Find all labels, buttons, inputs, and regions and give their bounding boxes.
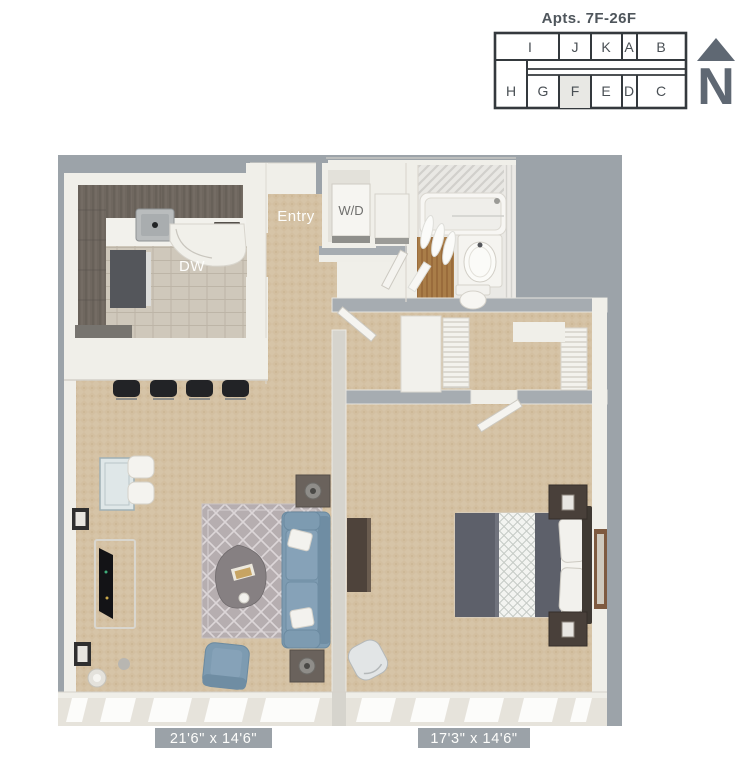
- key-plan-unit-c: C: [656, 83, 666, 99]
- floor-plan-page: Apts. 7F-26F I J K A B H G F E D C N: [0, 0, 740, 768]
- sofa: [282, 512, 330, 648]
- key-plan-unit-f: F: [571, 83, 580, 99]
- key-plan-unit-h: H: [506, 83, 516, 99]
- key-plan-unit-a: A: [624, 39, 634, 55]
- desk-chair: [128, 482, 154, 504]
- television: [99, 548, 113, 619]
- refrigerator: [110, 250, 146, 308]
- entry-label: Entry: [277, 208, 315, 225]
- washer-dryer-label: W/D: [338, 203, 363, 218]
- throw-pillow: [290, 607, 315, 629]
- hall-cabinet: [375, 194, 409, 238]
- kitchen-island: [64, 338, 268, 380]
- key-plan-unit-e: E: [601, 83, 610, 99]
- key-plan-unit-d: D: [624, 83, 634, 99]
- window-wall: [58, 692, 607, 726]
- key-plan-title: Apts. 7F-26F: [542, 10, 637, 27]
- closet-cabinet: [401, 316, 441, 392]
- living-dimension-label: 21'6" x 14'6": [170, 731, 257, 747]
- key-plan-unit-j: J: [572, 39, 579, 55]
- key-plan-unit-k: K: [601, 39, 611, 55]
- floor-plan-canvas: Apts. 7F-26F I J K A B H G F E D C N: [0, 0, 740, 768]
- armchair: [202, 642, 250, 690]
- bed: [455, 506, 592, 624]
- key-plan-unit-g: G: [538, 83, 549, 99]
- north-label: N: [697, 58, 735, 116]
- closet-rod-left: [443, 318, 469, 388]
- bedroom-dimension-label: 17'3" x 14'6": [430, 731, 517, 747]
- key-plan: Apts. 7F-26F I J K A B H G F E D C: [495, 10, 686, 108]
- dimension-badges: 21'6" x 14'6" 17'3" x 14'6": [155, 728, 530, 748]
- key-plan-unit-b: B: [656, 39, 665, 55]
- bed-pillow: [558, 517, 585, 563]
- north-arrow-icon: N: [697, 38, 735, 116]
- bed-pillow: [559, 567, 585, 612]
- dresser: [347, 518, 370, 592]
- dishwasher-label: DW: [179, 258, 205, 275]
- headboard: [582, 506, 592, 624]
- floor-plan: Entry DW W/D: [58, 155, 622, 726]
- key-plan-unit-i: I: [528, 39, 532, 55]
- desk-chair: [128, 456, 154, 478]
